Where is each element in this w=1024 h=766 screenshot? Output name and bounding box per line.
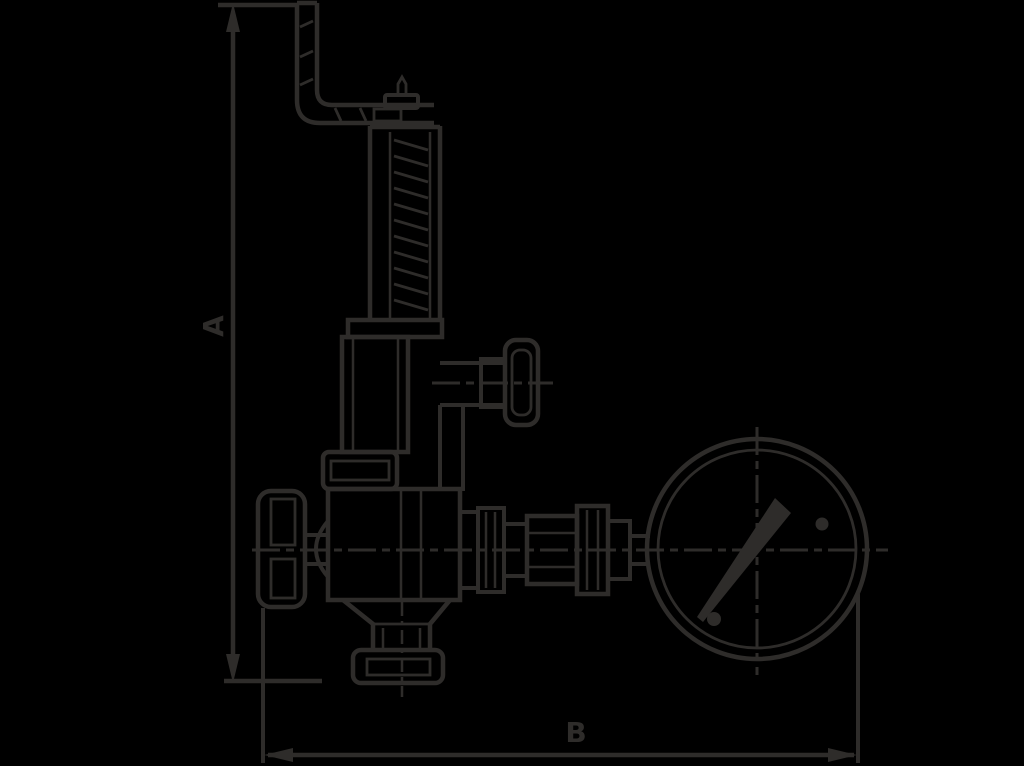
lever-inner-edge <box>317 3 434 105</box>
funnel-right <box>430 600 450 650</box>
dimension-b-arrow-right-icon <box>828 748 857 762</box>
lever <box>297 3 434 123</box>
left-handwheel-inner-bottom <box>271 559 295 598</box>
gauge-dial-dot-left <box>707 612 721 626</box>
dimension-a-arrow-up-icon <box>226 3 240 32</box>
bonnet-lower-flange-inner <box>331 461 389 480</box>
dimension-a-label: A <box>197 315 230 337</box>
bonnet <box>323 320 442 489</box>
dimension-a-arrow-down-icon <box>226 654 240 683</box>
valve-body <box>258 489 460 607</box>
drawing-canvas: A B <box>0 0 1024 766</box>
dimension-b-label: B <box>565 716 586 749</box>
spring-coils <box>394 140 428 310</box>
test-connection <box>440 340 538 491</box>
inlet-section <box>343 600 450 683</box>
bonnet-top-flange <box>348 320 442 337</box>
gauge-dial-dot-right <box>816 518 829 531</box>
dimension-b-arrow-left-icon <box>264 748 293 762</box>
body-outline <box>328 489 460 600</box>
centerlines <box>252 383 888 697</box>
bonnet-lower-flange <box>323 452 397 489</box>
spring-housing <box>370 126 440 322</box>
valve-dimension-drawing: A B <box>0 0 1024 766</box>
inlet-flange-inner <box>367 659 430 675</box>
lever-slot <box>374 109 401 121</box>
left-handwheel-inner-top <box>271 499 295 545</box>
funnel-left <box>343 600 373 650</box>
spindle-nut <box>385 95 418 108</box>
spindle-pin <box>398 77 406 95</box>
gauge-needle <box>697 498 791 622</box>
